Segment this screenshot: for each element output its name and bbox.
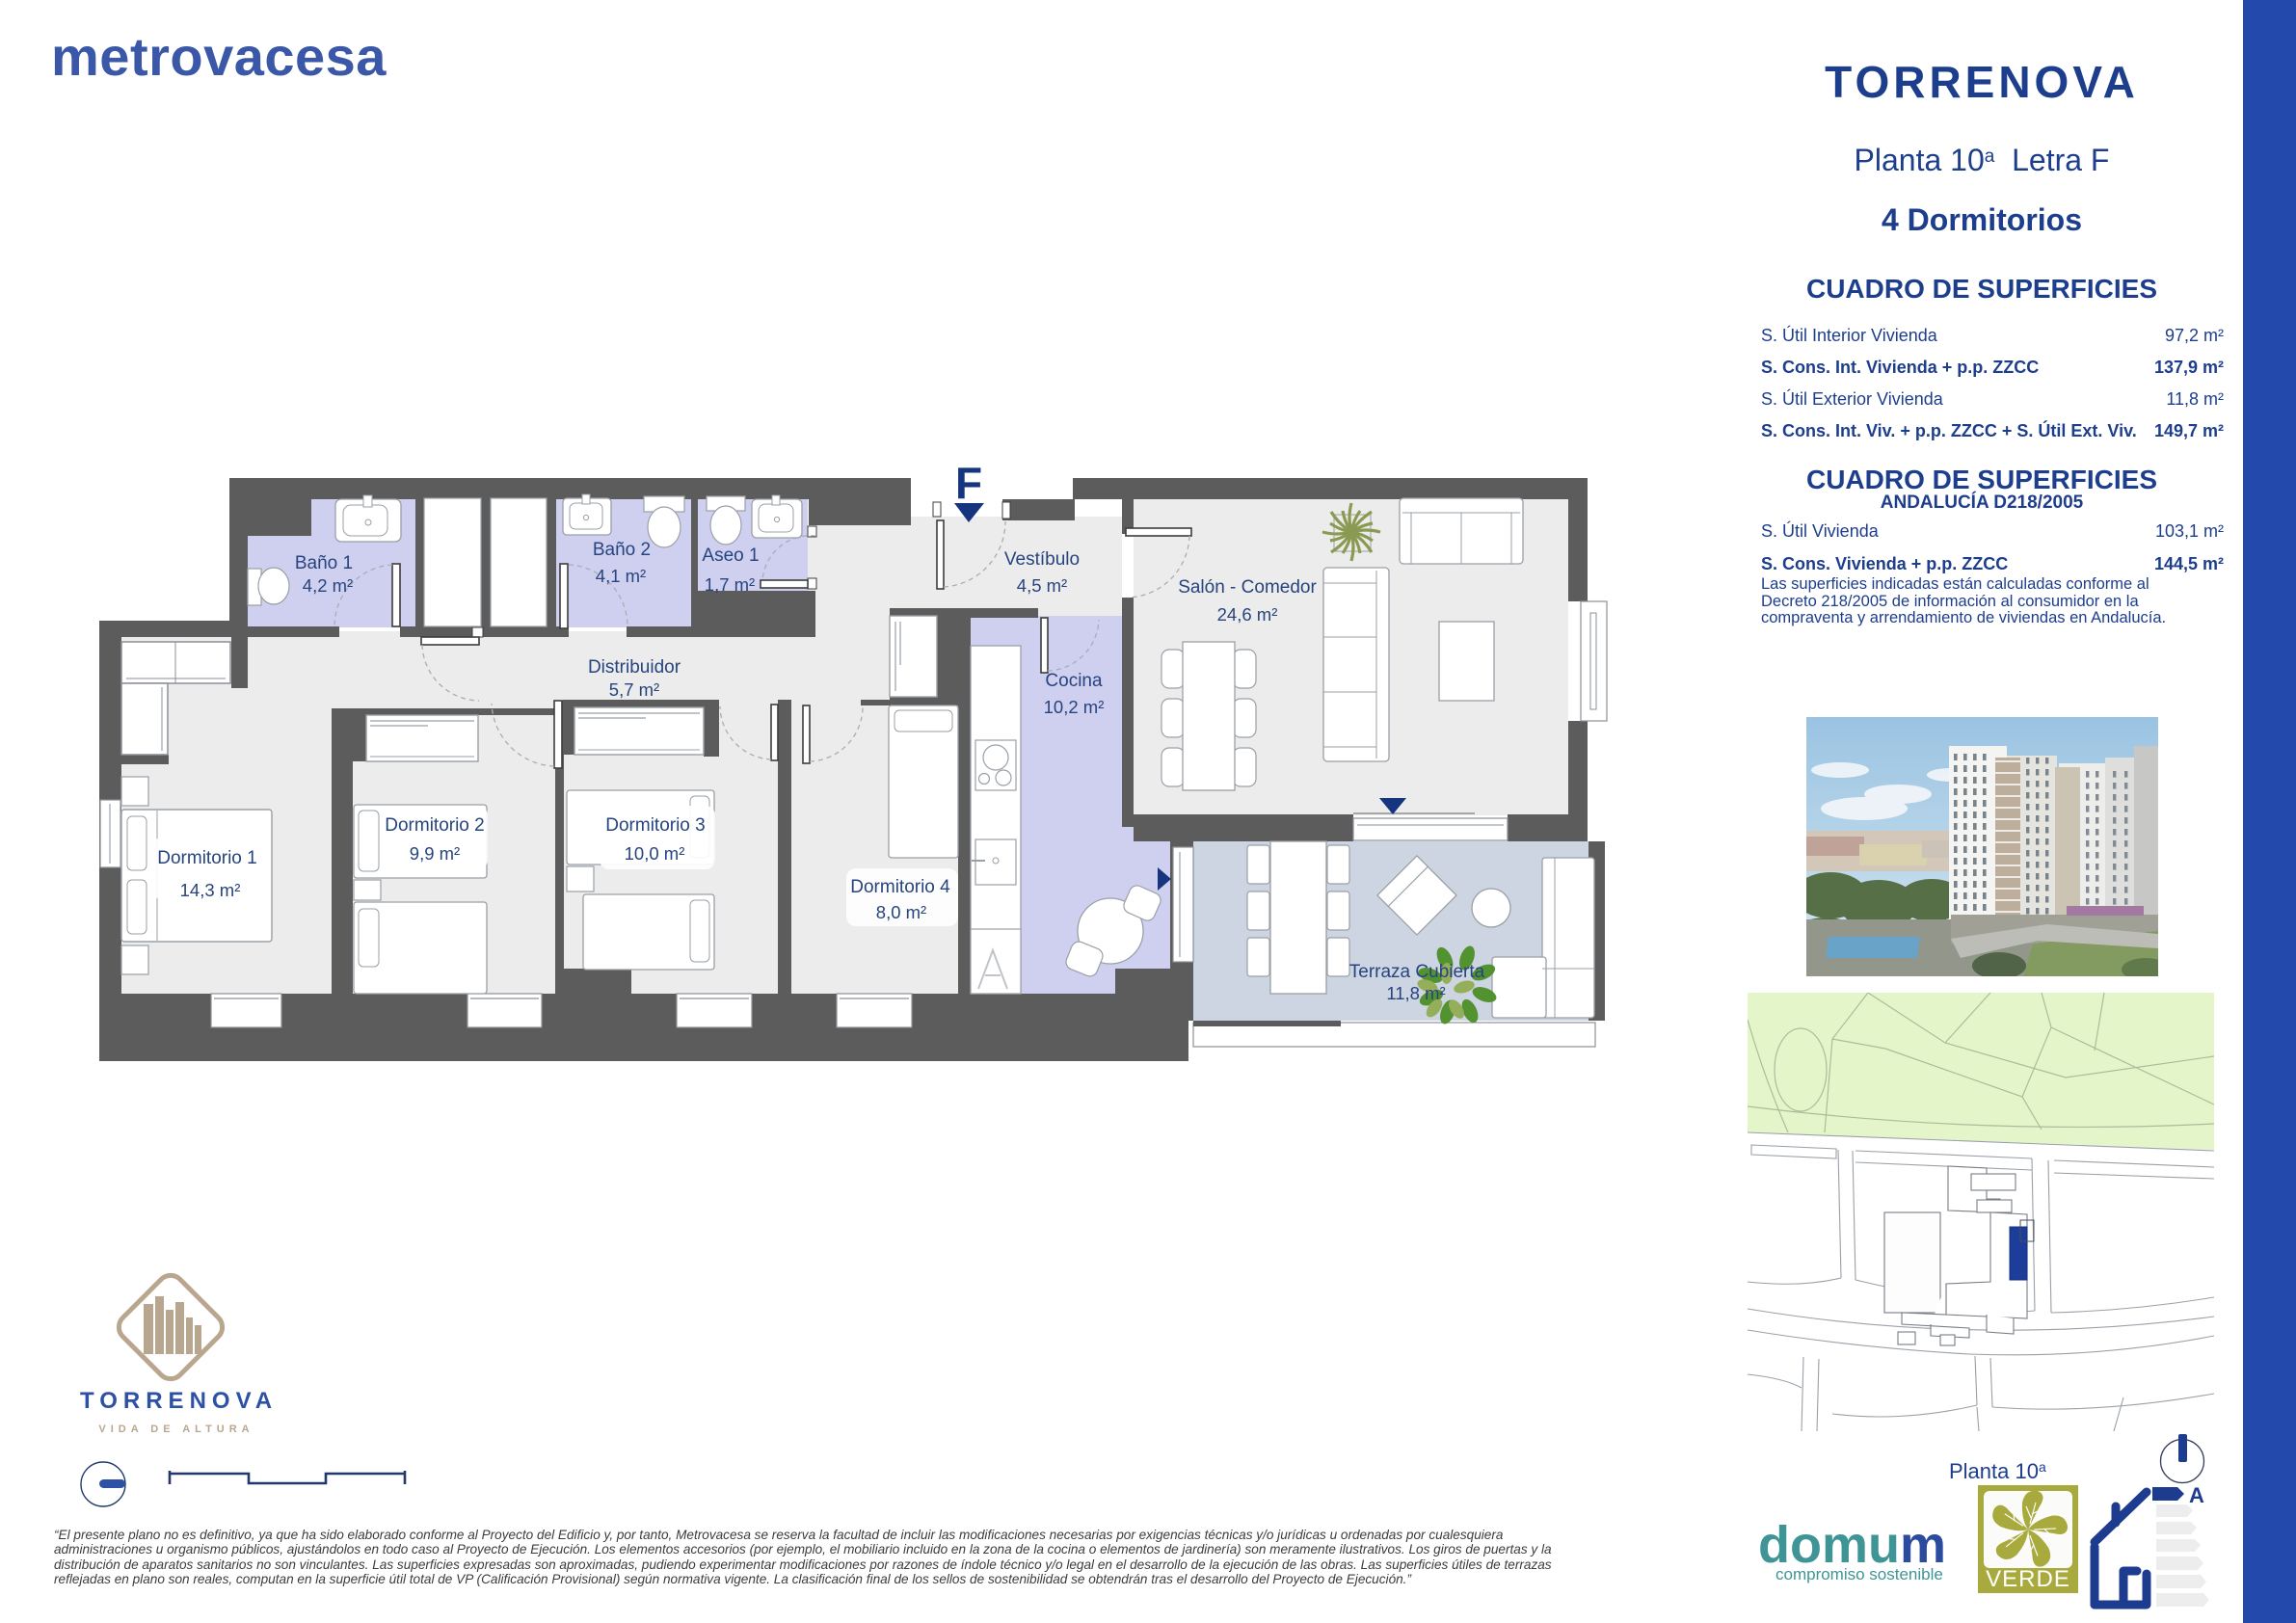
svg-text:Dormitorio 2: Dormitorio 2 (385, 815, 484, 836)
svg-text:10,0 m²: 10,0 m² (625, 843, 685, 864)
svg-text:9,9 m²: 9,9 m² (410, 843, 460, 864)
svg-text:4,5 m²: 4,5 m² (1017, 575, 1067, 596)
svg-text:14,3 m²: 14,3 m² (180, 880, 241, 900)
svg-text:F: F (955, 458, 982, 508)
svg-text:4,1 m²: 4,1 m² (596, 566, 646, 586)
svg-text:Vestíbulo: Vestíbulo (1004, 549, 1080, 570)
svg-text:Dormitorio 1: Dormitorio 1 (157, 848, 256, 868)
svg-text:Baño 1: Baño 1 (295, 553, 353, 573)
svg-text:1,7 m²: 1,7 m² (705, 574, 755, 595)
svg-text:Distribuidor: Distribuidor (588, 657, 681, 678)
svg-text:10,2 m²: 10,2 m² (1044, 697, 1105, 717)
svg-text:Terraza Cubierta: Terraza Cubierta (1349, 962, 1485, 982)
svg-text:Baño 2: Baño 2 (593, 540, 651, 560)
svg-text:Salón - Comedor: Salón - Comedor (1178, 577, 1317, 598)
svg-text:Aseo 1: Aseo 1 (702, 545, 759, 566)
svg-text:8,0 m²: 8,0 m² (876, 902, 926, 922)
svg-text:Dormitorio 4: Dormitorio 4 (850, 877, 950, 897)
svg-text:5,7 m²: 5,7 m² (609, 679, 659, 700)
svg-text:Dormitorio 3: Dormitorio 3 (605, 815, 705, 836)
svg-text:4,2 m²: 4,2 m² (303, 575, 353, 596)
svg-text:24,6 m²: 24,6 m² (1217, 604, 1278, 625)
svg-text:Cocina: Cocina (1045, 671, 1103, 691)
svg-text:11,8 m²: 11,8 m² (1386, 983, 1445, 1003)
